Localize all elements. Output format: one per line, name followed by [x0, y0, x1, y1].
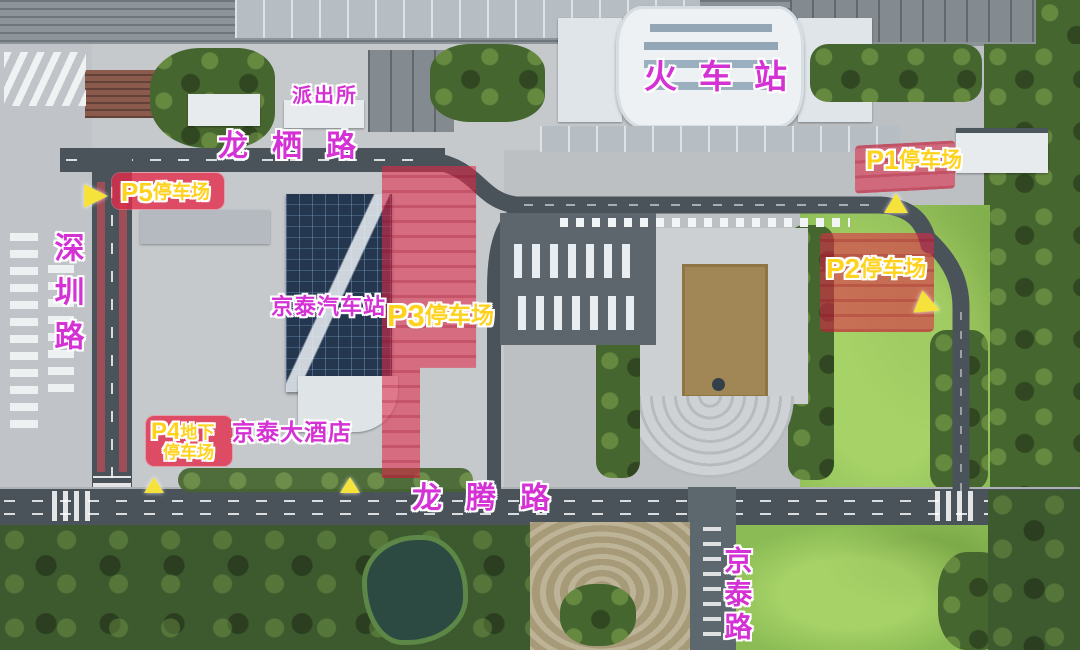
crosswalk [93, 476, 131, 487]
p4-name2: 停车场 [163, 444, 214, 461]
police-station-label: 派出所 [292, 86, 358, 107]
p1-code: P1 [866, 147, 899, 174]
p3-parking-label: P3停车场 [387, 300, 494, 331]
train-station-label: 火车站 [644, 60, 809, 95]
terminal-buses-row [514, 244, 640, 278]
p3-name: 停车场 [425, 304, 494, 327]
marker-longteng-west [144, 477, 164, 493]
marker-longteng-mid [340, 477, 360, 493]
road-longteng-label: 龙腾路 [412, 483, 574, 515]
road-shenzhen-label: 深圳路 [50, 232, 82, 364]
southeast-forest [988, 490, 1080, 650]
aerial-map: 派出所 龙栖路 深圳路 火车站 京泰汽车站 京泰大酒店 龙腾路 京泰路 P5停车… [0, 0, 1080, 650]
p5-parking-label: P5停车场 [121, 179, 210, 205]
road-longqi-label: 龙栖路 [218, 131, 380, 163]
p3-code: P3 [387, 300, 425, 331]
field-trees [560, 584, 636, 646]
terminal-buses-row [518, 296, 640, 330]
p4-parking-label-line1: P4地下 [151, 420, 214, 444]
p4-parking-label-line2: 停车场 [163, 444, 214, 461]
crosswalk [935, 491, 979, 521]
p5-code: P5 [121, 179, 153, 205]
p2-parking-label: P2停车场 [826, 255, 926, 283]
road-jingtai-label: 京泰路 [722, 546, 751, 645]
p5-name: 停车场 [153, 183, 210, 202]
crosswalk [52, 491, 92, 521]
parked-cars-row [560, 218, 850, 227]
hotel-label: 京泰大酒店 [232, 420, 352, 444]
p2-name: 停车场 [860, 258, 926, 280]
coach-station-label: 京泰汽车站 [271, 295, 386, 318]
marker-p5 [84, 184, 108, 208]
p1-name: 停车场 [899, 150, 962, 171]
marker-p1 [884, 193, 908, 213]
p4-code: P4 [151, 420, 180, 444]
pond [362, 535, 468, 645]
p2-code: P2 [826, 255, 860, 283]
p4-name: 地下 [180, 424, 214, 441]
p1-parking-label: P1停车场 [866, 147, 962, 174]
